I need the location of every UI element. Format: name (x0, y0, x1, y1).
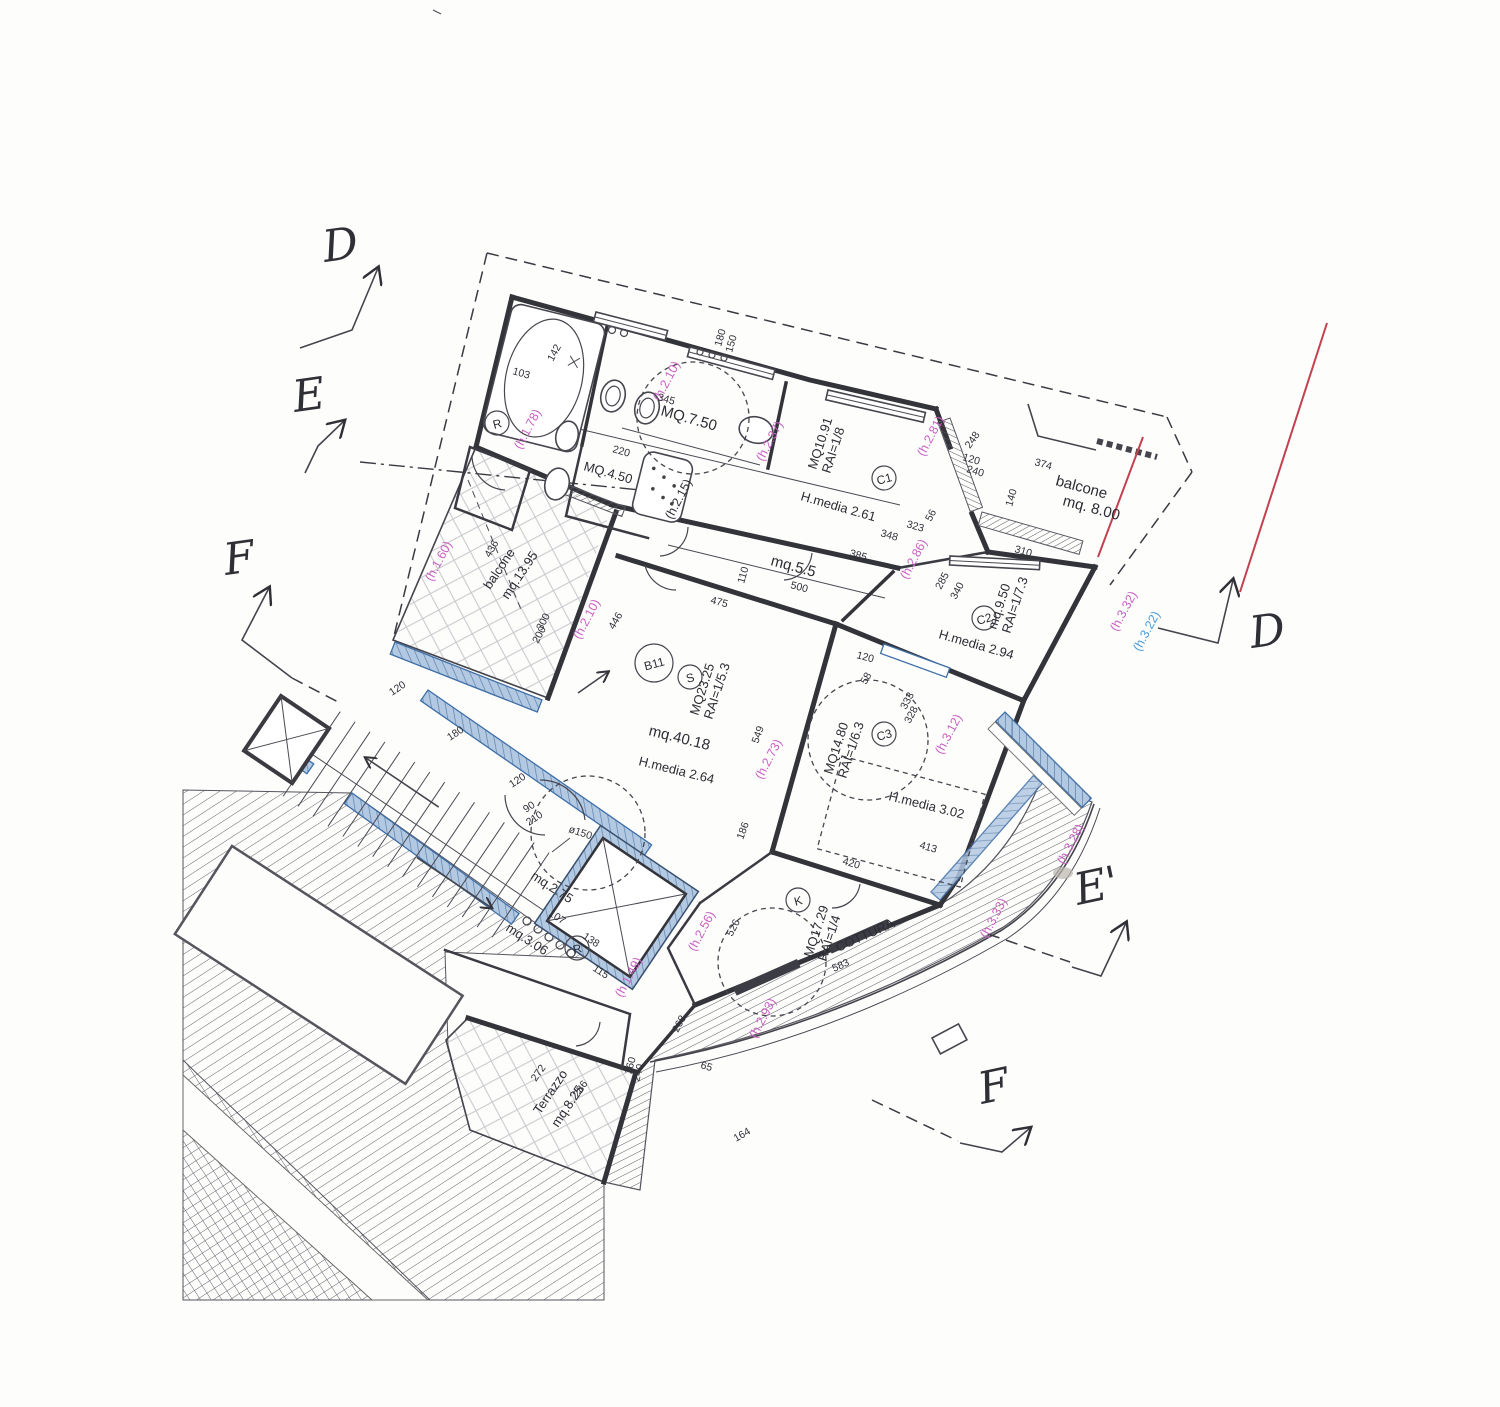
tag-c3: C3 (872, 722, 896, 746)
dim-248: 248 (963, 429, 983, 450)
small-shaft (244, 696, 329, 783)
dim-220: 220 (611, 443, 631, 459)
dim-500: 500 (789, 579, 809, 595)
dim-374: 374 (1033, 456, 1053, 472)
dim-120c: 120 (387, 679, 408, 699)
curved-balcony (604, 782, 1100, 1190)
elevator (535, 826, 699, 990)
dim-340: 340 (948, 580, 967, 601)
section-letter-f-left: F (219, 531, 259, 586)
note-h322: (h.3.22) (1130, 609, 1163, 654)
tag-k: K (786, 888, 810, 912)
label-living-h: H.media 2.64 (637, 753, 716, 786)
svg-text:K: K (793, 893, 804, 909)
label-living-area: mq.40.18 (647, 722, 712, 754)
dim-475: 475 (709, 594, 729, 610)
svg-text:C1: C1 (875, 470, 894, 488)
dim-348: 348 (879, 527, 899, 543)
label-bed2-h: H.media 3.02 (887, 788, 966, 821)
dim-420: 420 (841, 855, 861, 871)
section-letter-e-prime: E' (1069, 857, 1124, 916)
dim-164: 164 (732, 1125, 753, 1144)
label-bath-main: MQ.7.50 (659, 403, 719, 435)
dim-385: 385 (848, 547, 868, 563)
dim-65: 65 (699, 1059, 714, 1074)
label-bath-small: MQ.4.50 (582, 458, 634, 486)
dim-285: 285 (933, 570, 952, 591)
svg-text:C3: C3 (875, 726, 894, 744)
dim-413: 413 (918, 839, 938, 855)
dim-58: 58 (858, 670, 874, 686)
tag-b11: B11 (635, 644, 673, 682)
label-diam150: ø150 (567, 823, 594, 842)
note-h286: (h.2.86) (897, 537, 930, 582)
sink-1 (597, 378, 628, 415)
label-bed1-h: H.media 2.61 (799, 488, 877, 524)
dim-140: 140 (1003, 488, 1019, 508)
dim-323: 323 (905, 518, 925, 534)
tag-c1: C1 (872, 466, 896, 490)
red-lines (1098, 323, 1327, 592)
label-hall-area: mq.5.5 (769, 552, 818, 580)
dim-446: 446 (606, 610, 625, 631)
dim-186: 186 (735, 820, 752, 841)
dim-549: 549 (750, 724, 767, 745)
section-letter-d-left: D (318, 217, 361, 273)
section-letter-e-left: E (288, 368, 328, 423)
svg-text:B11: B11 (643, 654, 667, 673)
dim-56: 56 (923, 507, 939, 523)
dim-120a: 120 (855, 649, 875, 665)
note-h312: (h.3.12) (932, 712, 965, 757)
section-letter-f-bottom: F (973, 1058, 1016, 1115)
section-letter-d-right: D (1245, 603, 1288, 659)
floorplan-scan: D E F D E' F R R C1 C2 C3 B11 S K MQ.7.5… (0, 0, 1500, 1407)
dim-526: 526 (724, 917, 743, 938)
dim-110: 110 (735, 565, 751, 585)
floorplan-drawing: D E F D E' F R R C1 C2 C3 B11 S K MQ.7.5… (0, 0, 1500, 1407)
note-h332: (h.3.32) (1107, 589, 1140, 634)
svg-text:S: S (685, 670, 696, 686)
